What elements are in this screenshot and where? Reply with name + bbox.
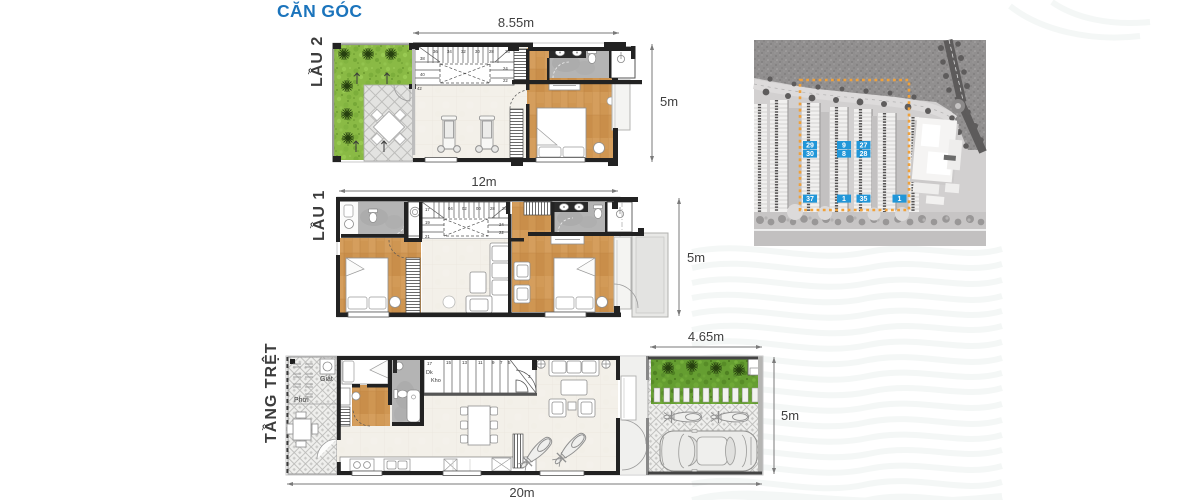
svg-text:28: 28 [489, 49, 494, 54]
svg-text:36: 36 [433, 49, 438, 54]
svg-text:TẦNG TRỆT: TẦNG TRỆT [261, 342, 280, 443]
svg-text:27: 27 [860, 143, 868, 150]
svg-text:11: 11 [478, 360, 483, 365]
svg-text:22: 22 [503, 78, 508, 83]
svg-text:24: 24 [499, 222, 504, 227]
svg-text:5m: 5m [687, 250, 705, 265]
svg-text:13: 13 [462, 360, 468, 365]
svg-text:12m: 12m [471, 174, 496, 189]
svg-text:00: 00 [476, 206, 481, 211]
svg-text:04: 04 [448, 206, 453, 211]
svg-text:35: 35 [860, 196, 868, 203]
svg-text:42: 42 [417, 86, 422, 91]
svg-text:22: 22 [499, 230, 504, 235]
svg-text:28: 28 [860, 151, 868, 158]
svg-text:5m: 5m [660, 94, 678, 109]
svg-text:1: 1 [898, 196, 902, 203]
svg-text:29: 29 [806, 143, 814, 150]
svg-text:LẦU 1: LẦU 1 [309, 190, 328, 241]
svg-text:9: 9 [842, 143, 846, 150]
svg-text:32: 32 [461, 49, 466, 54]
svg-text:Phơi: Phơi [294, 397, 309, 404]
svg-text:8.55m: 8.55m [498, 15, 534, 30]
svg-text:28: 28 [490, 206, 495, 211]
svg-text:37: 37 [806, 196, 814, 203]
svg-text:40: 40 [420, 72, 425, 77]
svg-text:30: 30 [475, 49, 480, 54]
svg-text:4.65m: 4.65m [688, 329, 724, 344]
svg-text:1: 1 [842, 196, 846, 203]
svg-text:15: 15 [446, 360, 452, 365]
svg-text:34: 34 [447, 49, 452, 54]
svg-text:17: 17 [427, 361, 433, 366]
svg-text:17: 17 [425, 207, 430, 212]
svg-text:Dk: Dk [426, 370, 433, 376]
svg-text:8: 8 [842, 151, 846, 158]
svg-text:24: 24 [503, 66, 508, 71]
svg-text:30: 30 [806, 151, 814, 158]
svg-text:38: 38 [420, 56, 425, 61]
svg-text:21: 21 [425, 234, 430, 239]
svg-text:5m: 5m [781, 408, 799, 423]
svg-text:02: 02 [462, 206, 467, 211]
svg-text:Kho: Kho [431, 378, 441, 384]
svg-text:19: 19 [425, 220, 430, 225]
svg-text:20m: 20m [509, 485, 534, 500]
svg-text:Giặt: Giặt [320, 376, 333, 383]
svg-text:LẦU 2: LẦU 2 [307, 36, 326, 87]
svg-text:CĂN GÓC: CĂN GÓC [277, 0, 362, 21]
